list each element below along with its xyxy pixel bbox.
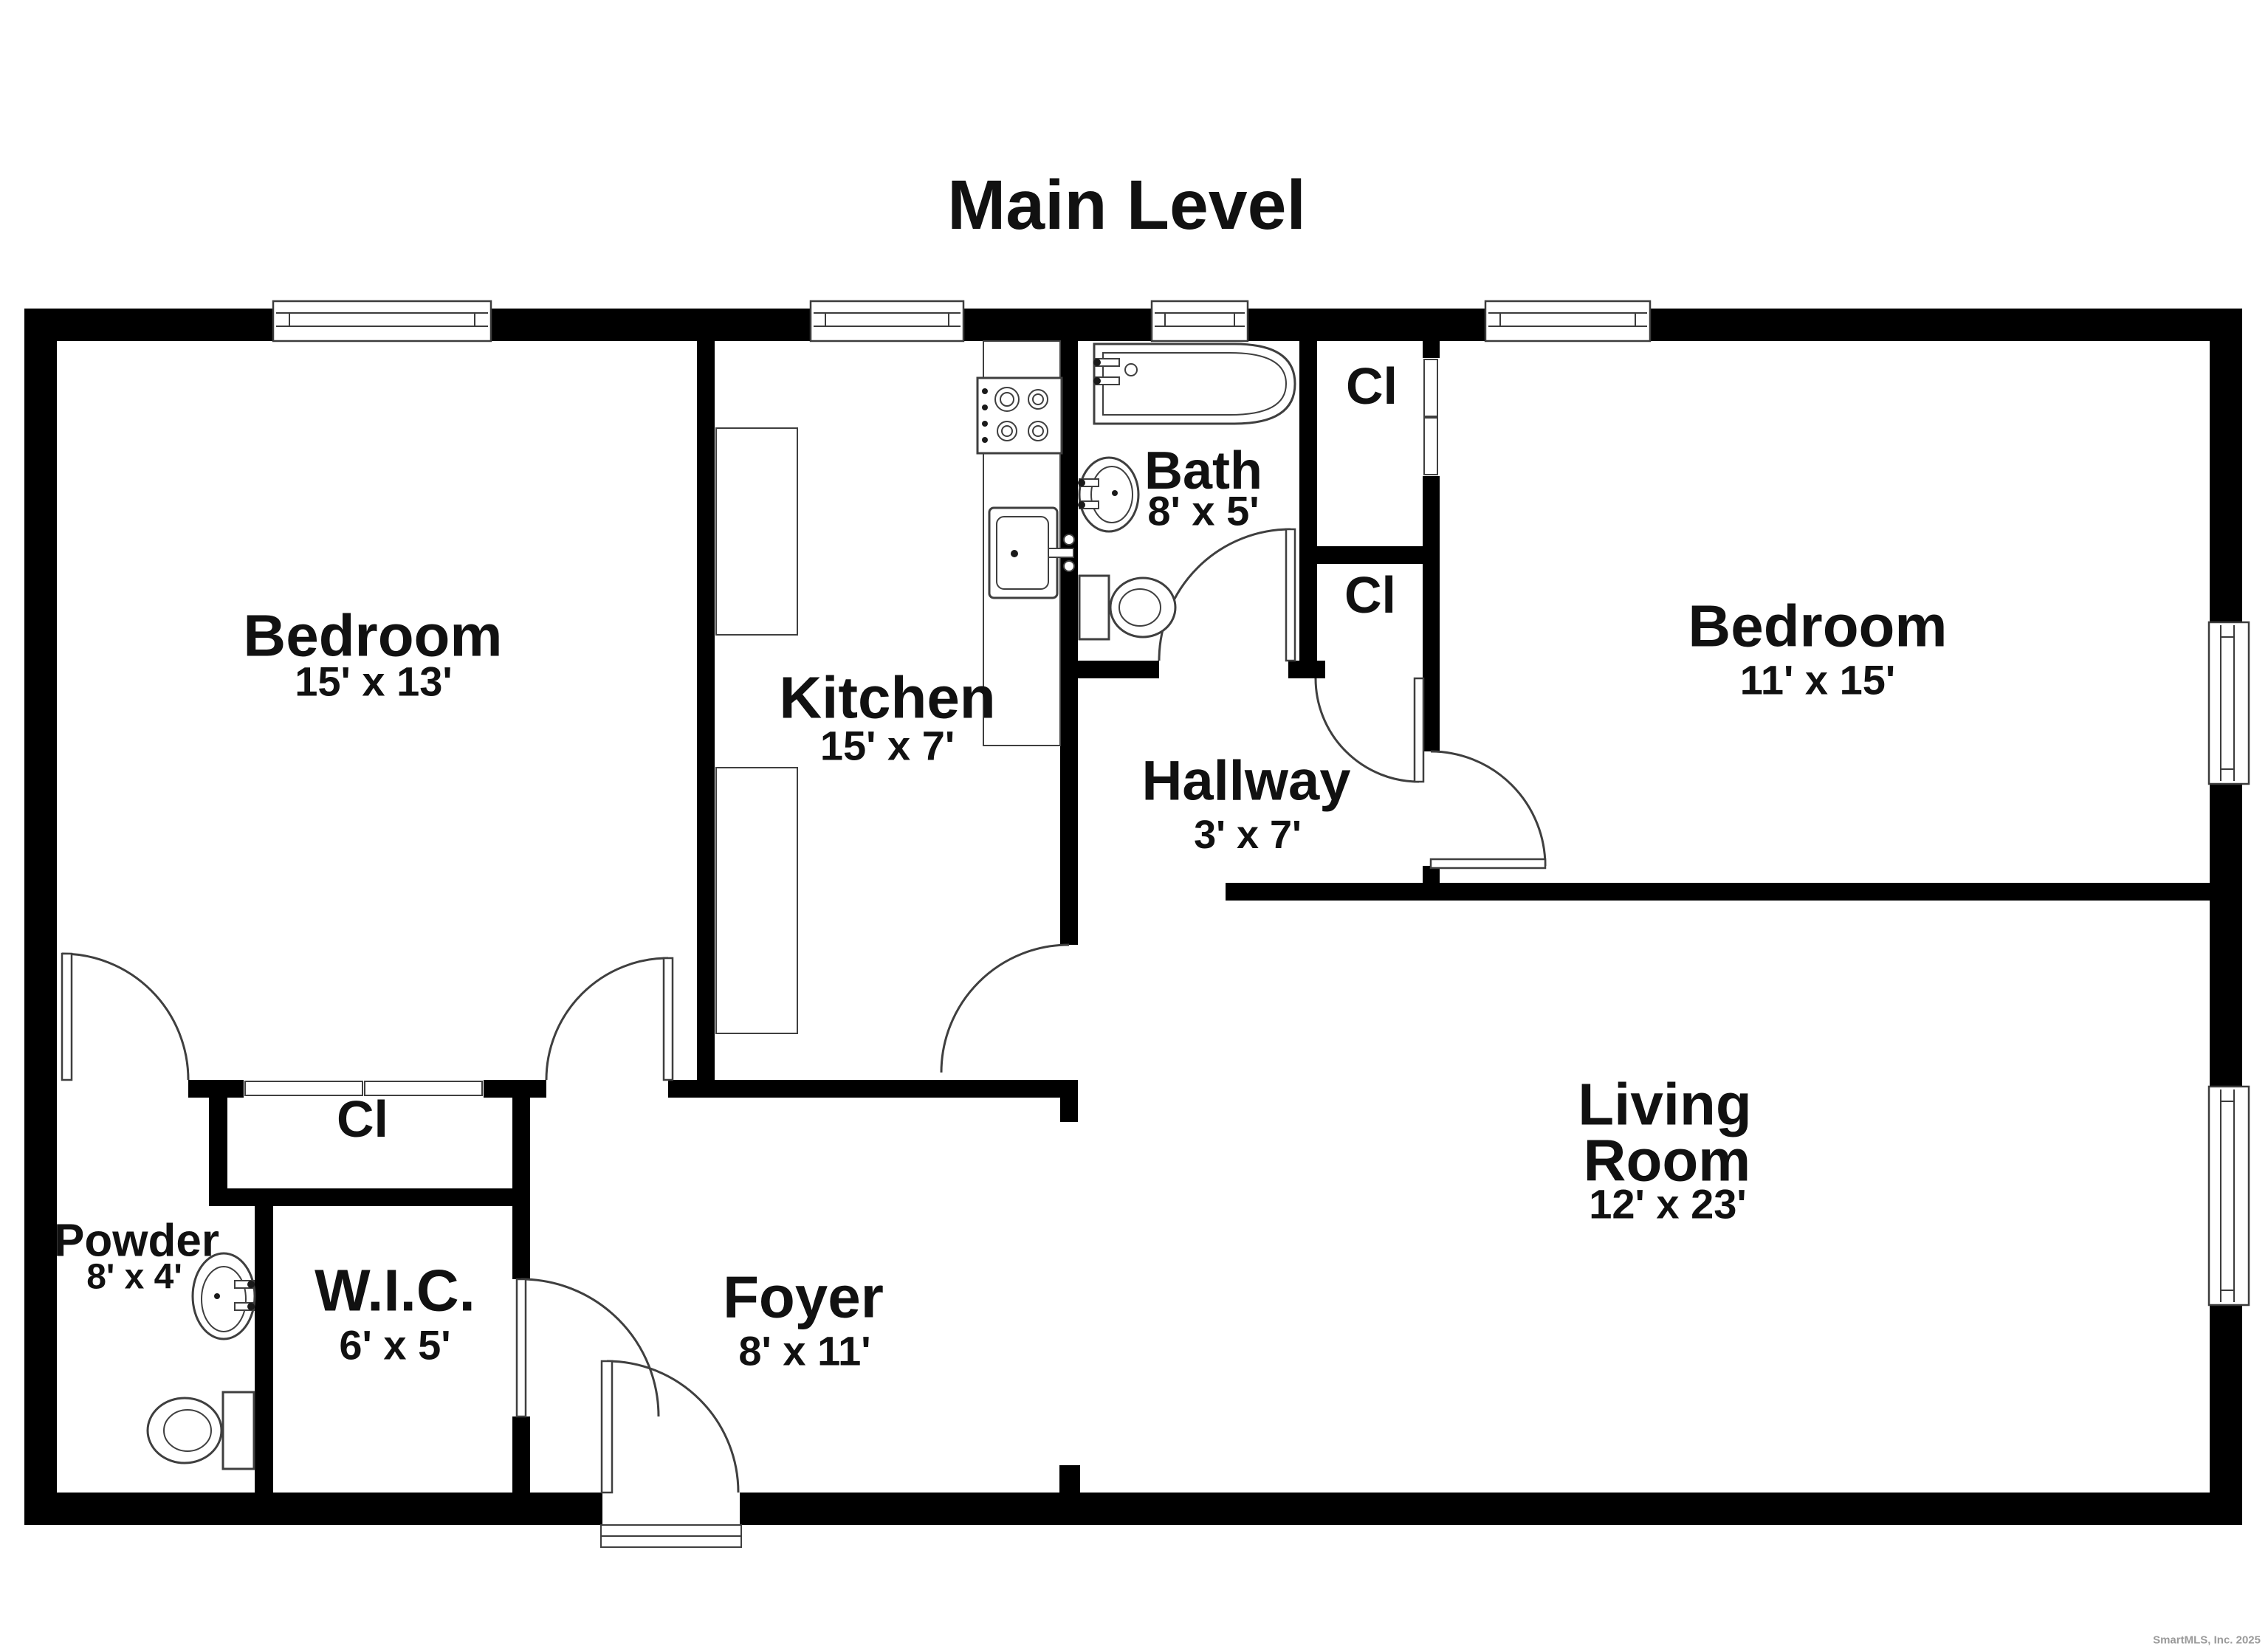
bedroom-right-closet-bifold (1424, 359, 1437, 475)
bedroom-right-door-arc (1431, 751, 1545, 866)
entry-door (601, 1361, 741, 1547)
room-dims-bedroom-right: 11' x 15' (1740, 657, 1895, 703)
room-dims-living: 12' x 23' (1589, 1181, 1746, 1228)
kitchen-door-arc (941, 945, 1069, 1073)
entry-door-leaf (602, 1361, 612, 1493)
wic-door-arc (521, 1279, 659, 1416)
toilet-icon (148, 1392, 254, 1469)
window-icon (811, 301, 963, 341)
room-label-wic: W.I.C. (315, 1258, 475, 1323)
kitchen-counter (716, 768, 797, 1033)
floor-plan-drawing: Main Level (0, 0, 2268, 1649)
closet-label-top: Cl (1346, 357, 1398, 415)
room-dims-hallway: 3' x 7' (1194, 813, 1302, 857)
toilet-icon (1079, 576, 1175, 639)
room-dims-bath: 8' x 5' (1147, 488, 1259, 534)
kitchen-counter (716, 428, 797, 635)
hall-closet-door-leaf (1415, 678, 1423, 782)
window-icon (1485, 301, 1650, 341)
room-dims-foyer: 8' x 11' (738, 1328, 870, 1374)
wic-door-leaf (517, 1279, 526, 1416)
room-label-kitchen: Kitchen (779, 665, 995, 731)
bath-door-leaf (1286, 529, 1295, 661)
room-label-bedroom-right: Bedroom (1688, 593, 1947, 659)
room-dims-kitchen: 15' x 7' (820, 723, 955, 769)
bathtub-icon (1093, 344, 1295, 424)
bedroom-left-door-leaf (664, 958, 673, 1080)
window-icon (2209, 622, 2249, 784)
watermark: SmartMLS, Inc. 2025 (2153, 1634, 2261, 1647)
entry-door-arc (607, 1361, 738, 1493)
window-icon (1152, 301, 1248, 341)
room-dims-powder: 8' x 4' (86, 1258, 182, 1297)
bath-door-arc (1159, 529, 1291, 661)
closet-label-bedroom-left: Cl (337, 1090, 388, 1148)
room-dims-bedroom-left: 15' x 13' (295, 658, 452, 705)
powder-door-leaf (62, 954, 72, 1080)
room-dims-wic: 6' x 5' (339, 1322, 450, 1369)
stove-icon (977, 378, 1062, 453)
bedroom-left-door-arc (546, 958, 668, 1080)
room-label-foyer: Foyer (723, 1264, 884, 1330)
powder-door-arc (62, 954, 188, 1080)
window-icon (2209, 1087, 2249, 1305)
closet-label-mid: Cl (1344, 566, 1396, 624)
bedroom-right-door-leaf (1431, 859, 1545, 868)
page-title: Main Level (947, 166, 1306, 244)
room-label-hallway: Hallway (1141, 750, 1350, 813)
bath-sink-icon (1078, 458, 1138, 531)
floor-plan-page: Main Level (0, 0, 2268, 1649)
window-icon (273, 301, 491, 341)
